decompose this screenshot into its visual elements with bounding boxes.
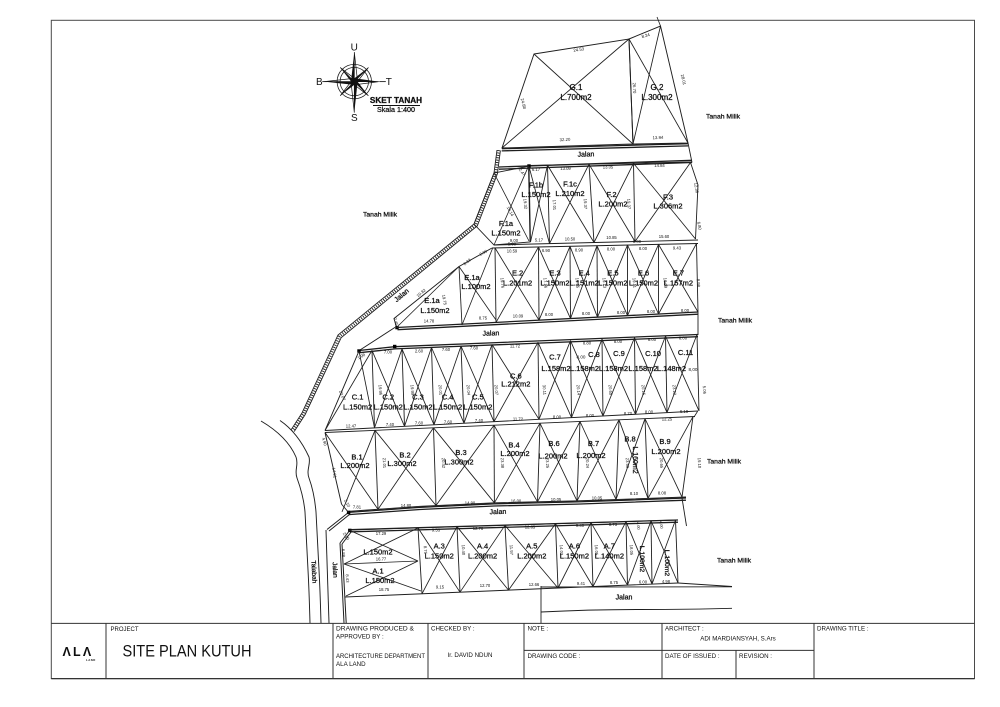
svg-text:12.70: 12.70 bbox=[480, 583, 491, 588]
svg-text:20.04: 20.04 bbox=[466, 384, 472, 395]
svg-text:19.99: 19.99 bbox=[410, 384, 416, 395]
svg-text:30.11: 30.11 bbox=[542, 385, 548, 396]
svg-text:10.05: 10.05 bbox=[592, 496, 603, 501]
svg-text:L.158m2: L.158m2 bbox=[628, 364, 657, 373]
svg-text:8.00: 8.00 bbox=[645, 410, 654, 415]
svg-text:8.00: 8.00 bbox=[617, 310, 626, 315]
svg-text:23.25: 23.25 bbox=[545, 458, 551, 469]
svg-text:19.37: 19.37 bbox=[626, 199, 632, 210]
svg-text:17.01: 17.01 bbox=[552, 200, 558, 211]
svg-text:F.1c: F.1c bbox=[563, 180, 577, 189]
svg-text:A.3: A.3 bbox=[434, 542, 445, 551]
svg-text:F.1b: F.1b bbox=[529, 181, 543, 190]
svg-text:L.200m2: L.200m2 bbox=[651, 447, 680, 456]
svg-text:C.5: C.5 bbox=[472, 393, 484, 402]
svg-text:Jalan: Jalan bbox=[489, 509, 506, 517]
svg-text:32.20: 32.20 bbox=[559, 137, 571, 142]
svg-text:A.4: A.4 bbox=[477, 542, 488, 551]
svg-text:C.9: C.9 bbox=[613, 349, 625, 358]
svg-text:9.43: 9.43 bbox=[673, 245, 682, 250]
svg-text:APPROVED BY :: APPROVED BY : bbox=[336, 634, 384, 641]
svg-text:20.65: 20.65 bbox=[608, 384, 614, 395]
svg-text:7.40: 7.40 bbox=[475, 418, 484, 423]
svg-text:DRAWING CODE :: DRAWING CODE : bbox=[528, 653, 581, 660]
svg-text:20.42: 20.42 bbox=[441, 458, 447, 469]
svg-text:4.98: 4.98 bbox=[662, 579, 671, 584]
svg-text:A.6: A.6 bbox=[569, 542, 580, 551]
svg-text:ARCHITECT :: ARCHITECT : bbox=[665, 626, 704, 633]
svg-text:Tanah Milik: Tanah Milik bbox=[718, 318, 753, 325]
svg-text:5.00: 5.00 bbox=[508, 242, 517, 247]
svg-text:20.65: 20.65 bbox=[659, 458, 665, 469]
svg-text:U: U bbox=[351, 43, 358, 54]
svg-text:Tanah Milik: Tanah Milik bbox=[717, 558, 752, 565]
svg-text:6.90: 6.90 bbox=[542, 248, 551, 253]
svg-text:ADI MARDIANSYAH, S.Ars: ADI MARDIANSYAH, S.Ars bbox=[700, 636, 776, 643]
svg-text:10.09: 10.09 bbox=[513, 314, 524, 319]
svg-text:8.00: 8.00 bbox=[577, 355, 586, 360]
svg-text:10.05: 10.05 bbox=[551, 497, 562, 502]
svg-text:SKET TANAH: SKET TANAH bbox=[370, 96, 422, 105]
svg-text:7.60: 7.60 bbox=[442, 347, 451, 352]
svg-text:B: B bbox=[316, 77, 323, 88]
svg-text:7.60: 7.60 bbox=[415, 421, 424, 426]
svg-text:14.84: 14.84 bbox=[654, 163, 665, 168]
svg-text:L.100m2: L.100m2 bbox=[663, 550, 670, 577]
svg-text:F.3: F.3 bbox=[663, 193, 673, 202]
svg-text:8,00: 8,00 bbox=[689, 367, 698, 372]
svg-text:9.41: 9.41 bbox=[577, 581, 586, 586]
svg-text:8.90: 8.90 bbox=[575, 247, 584, 252]
svg-text:9.53: 9.53 bbox=[432, 528, 441, 533]
svg-text:Jalan: Jalan bbox=[482, 330, 499, 338]
svg-text:Tanah Milik: Tanah Milik bbox=[707, 459, 742, 466]
svg-text:L.151m2: L.151m2 bbox=[570, 279, 599, 288]
svg-text:6.00: 6.00 bbox=[639, 580, 648, 585]
svg-text:13.05: 13.05 bbox=[603, 165, 614, 170]
svg-text:L.148m2: L.148m2 bbox=[657, 364, 686, 373]
svg-text:18.75: 18.75 bbox=[379, 587, 390, 592]
svg-text:F.1a: F.1a bbox=[499, 219, 514, 228]
svg-text:8.43: 8.43 bbox=[345, 574, 350, 583]
svg-text:8.75: 8.75 bbox=[479, 316, 488, 321]
svg-text:L.150m2: L.150m2 bbox=[363, 548, 392, 557]
svg-text:SITE PLAN KUTUH: SITE PLAN KUTUH bbox=[123, 642, 252, 661]
svg-text:19.32: 19.32 bbox=[523, 198, 529, 210]
svg-text:16.05: 16.05 bbox=[594, 545, 600, 556]
svg-text:A.1: A.1 bbox=[372, 567, 383, 576]
svg-text:6.17: 6.17 bbox=[532, 167, 541, 172]
svg-text:11.72: 11.72 bbox=[510, 344, 521, 349]
svg-text:L.300m2: L.300m2 bbox=[387, 459, 416, 468]
svg-text:9.40: 9.40 bbox=[576, 523, 585, 528]
svg-text:Jalan: Jalan bbox=[616, 595, 633, 602]
svg-text:19.10: 19.10 bbox=[697, 458, 703, 469]
svg-text:B.6: B.6 bbox=[548, 439, 559, 448]
svg-text:18.05: 18.05 bbox=[629, 545, 635, 556]
svg-text:L.150m2: L.150m2 bbox=[420, 306, 449, 315]
svg-text:Tanah Milik: Tanah Milik bbox=[706, 114, 741, 121]
svg-text:14.80: 14.80 bbox=[401, 503, 412, 508]
svg-text:8.00: 8.00 bbox=[553, 414, 562, 419]
svg-text:8.70: 8.70 bbox=[624, 411, 633, 416]
svg-text:9.15: 9.15 bbox=[436, 585, 445, 590]
svg-text:7.81: 7.81 bbox=[353, 504, 362, 509]
svg-text:5.06: 5.06 bbox=[702, 386, 708, 395]
svg-text:L.200m2: L.200m2 bbox=[538, 452, 567, 461]
svg-text:17.29: 17.29 bbox=[376, 531, 387, 536]
svg-text:ALA LAND: ALA LAND bbox=[336, 661, 366, 668]
svg-text:17.26: 17.26 bbox=[543, 277, 549, 288]
svg-text:7.00: 7.00 bbox=[384, 350, 393, 355]
svg-text:10.40: 10.40 bbox=[461, 545, 467, 556]
svg-text:Talabah: Talabah bbox=[309, 560, 317, 583]
svg-text:L.200m2: L.200m2 bbox=[598, 200, 627, 209]
svg-text:A.7: A.7 bbox=[604, 542, 615, 551]
svg-text:Tanah Milik: Tanah Milik bbox=[363, 212, 398, 219]
svg-text:11.72: 11.72 bbox=[513, 416, 524, 421]
svg-text:L.150m2: L.150m2 bbox=[433, 403, 462, 412]
svg-text:13.09: 13.09 bbox=[560, 166, 571, 171]
svg-text:20.14: 20.14 bbox=[576, 384, 582, 395]
svg-text:23.99: 23.99 bbox=[625, 458, 631, 469]
svg-text:B.8: B.8 bbox=[624, 435, 635, 444]
svg-text:8.75: 8.75 bbox=[610, 580, 619, 585]
svg-text:19.09: 19.09 bbox=[663, 277, 669, 288]
svg-text:6.18: 6.18 bbox=[680, 409, 689, 414]
svg-text:2.60: 2.60 bbox=[415, 348, 424, 353]
svg-text:E.1a: E.1a bbox=[464, 273, 480, 282]
svg-text:L.150m2: L.150m2 bbox=[365, 576, 394, 585]
svg-text:L.150m2: L.150m2 bbox=[343, 403, 372, 412]
svg-text:14.03: 14.03 bbox=[559, 545, 565, 556]
svg-text:L.150m2: L.150m2 bbox=[374, 403, 403, 412]
svg-text:19.96: 19.96 bbox=[378, 384, 384, 395]
svg-text:8.08: 8.08 bbox=[658, 491, 667, 496]
svg-text:7.60: 7.60 bbox=[444, 420, 453, 425]
svg-text:12.85: 12.85 bbox=[525, 525, 536, 530]
svg-text:S: S bbox=[351, 113, 358, 124]
svg-text:A.5: A.5 bbox=[526, 542, 537, 551]
svg-text:G.1: G.1 bbox=[570, 83, 583, 92]
svg-text:8.00: 8.00 bbox=[647, 309, 656, 314]
svg-text:19.76: 19.76 bbox=[500, 277, 506, 288]
svg-text:8.00: 8.00 bbox=[545, 312, 554, 317]
svg-text:L.150m2: L.150m2 bbox=[463, 403, 492, 412]
svg-text:E.3: E.3 bbox=[549, 269, 560, 278]
svg-text:16.77: 16.77 bbox=[376, 557, 387, 562]
svg-text:B.7: B.7 bbox=[588, 439, 599, 448]
svg-text:L.160m2: L.160m2 bbox=[631, 446, 638, 473]
svg-text:L.158m2: L.158m2 bbox=[599, 364, 628, 373]
svg-text:C.1: C.1 bbox=[352, 393, 364, 402]
svg-text:7.40: 7.40 bbox=[386, 422, 395, 427]
svg-text:T: T bbox=[386, 77, 392, 88]
svg-text:G.2: G.2 bbox=[651, 83, 664, 92]
svg-text:19.15: 19.15 bbox=[575, 277, 581, 288]
svg-text:L.200m2: L.200m2 bbox=[517, 552, 546, 561]
svg-text:L.201m2: L.201m2 bbox=[503, 279, 532, 288]
svg-text:L.100m2: L.100m2 bbox=[638, 546, 645, 573]
svg-text:E.4: E.4 bbox=[579, 269, 590, 278]
svg-text:7.60: 7.60 bbox=[470, 346, 479, 351]
svg-text:C.7: C.7 bbox=[549, 353, 561, 362]
svg-text:E.6: E.6 bbox=[638, 269, 649, 278]
svg-text:8.00: 8.00 bbox=[633, 239, 642, 244]
svg-text:12.66: 12.66 bbox=[529, 582, 540, 587]
svg-text:PROJECT: PROJECT bbox=[111, 627, 139, 633]
svg-text:8.00: 8.00 bbox=[614, 339, 623, 344]
svg-text:14.78: 14.78 bbox=[424, 319, 435, 324]
svg-text:Jalan: Jalan bbox=[578, 151, 595, 158]
svg-text:Jalan: Jalan bbox=[331, 562, 339, 578]
svg-text:Ir. DAVID NDUN: Ir. DAVID NDUN bbox=[448, 652, 493, 659]
svg-text:L.306m2: L.306m2 bbox=[653, 202, 682, 211]
svg-text:5.17: 5.17 bbox=[535, 238, 544, 243]
svg-text:CHECKED BY :: CHECKED BY : bbox=[431, 626, 475, 633]
svg-text:L.300m2: L.300m2 bbox=[444, 458, 473, 467]
svg-text:23.22: 23.22 bbox=[672, 384, 678, 395]
svg-text:8.10: 8.10 bbox=[630, 491, 639, 496]
svg-text:B.9: B.9 bbox=[659, 437, 670, 446]
svg-text:8.73: 8.73 bbox=[609, 522, 618, 527]
svg-text:20.24: 20.24 bbox=[585, 458, 591, 469]
svg-text:20.15: 20.15 bbox=[641, 384, 647, 395]
svg-text:10.50: 10.50 bbox=[565, 237, 576, 242]
svg-text:19.11: 19.11 bbox=[632, 278, 638, 289]
svg-text:NOTE :: NOTE : bbox=[528, 626, 549, 633]
svg-text:10.85: 10.85 bbox=[606, 235, 617, 240]
svg-text:L.210m2: L.210m2 bbox=[555, 189, 584, 198]
svg-text:C.11: C.11 bbox=[678, 348, 693, 357]
svg-text:20.01: 20.01 bbox=[438, 384, 444, 395]
svg-text:L.200m2: L.200m2 bbox=[340, 461, 369, 470]
svg-text:15.60: 15.60 bbox=[659, 234, 670, 239]
svg-text:REVISION :: REVISION : bbox=[739, 653, 772, 660]
svg-text:8.00: 8.00 bbox=[648, 337, 657, 342]
svg-text:C.8: C.8 bbox=[588, 350, 600, 359]
svg-text:10.59: 10.59 bbox=[507, 249, 518, 254]
svg-text:L.700m2: L.700m2 bbox=[560, 93, 592, 102]
svg-text:E.1a: E.1a bbox=[424, 296, 440, 305]
svg-text:23.38: 23.38 bbox=[500, 458, 506, 469]
svg-text:8.00: 8.00 bbox=[586, 413, 595, 418]
svg-text:8.80: 8.80 bbox=[583, 340, 592, 345]
svg-text:L.158m2: L.158m2 bbox=[570, 364, 599, 373]
svg-text:26.70: 26.70 bbox=[632, 82, 637, 94]
svg-text:DRAWING TITLE :: DRAWING TITLE : bbox=[817, 626, 869, 633]
svg-text:ARCHITECTURE DEPARTMENT: ARCHITECTURE DEPARTMENT bbox=[336, 653, 425, 660]
svg-text:F.2: F.2 bbox=[606, 190, 616, 199]
svg-text:12.78: 12.78 bbox=[473, 526, 484, 531]
svg-text:DRAWING PRODUCED &: DRAWING PRODUCED & bbox=[336, 626, 415, 633]
svg-text:E.5: E.5 bbox=[607, 269, 618, 278]
svg-text:19.37: 19.37 bbox=[583, 199, 589, 210]
svg-text:8.98: 8.98 bbox=[696, 279, 702, 288]
svg-text:8.00: 8.00 bbox=[679, 336, 688, 341]
svg-text:6.88: 6.88 bbox=[341, 549, 346, 558]
svg-text:8.00: 8.00 bbox=[639, 246, 648, 251]
svg-text:L.150m2: L.150m2 bbox=[491, 229, 520, 238]
svg-text:L.158m2: L.158m2 bbox=[541, 364, 570, 373]
svg-text:Skala 1:400: Skala 1:400 bbox=[377, 105, 415, 114]
svg-text:20.07: 20.07 bbox=[494, 384, 500, 395]
svg-text:11.97: 11.97 bbox=[509, 545, 515, 556]
svg-text:L.100m2: L.100m2 bbox=[461, 282, 490, 291]
svg-text:L.150m2: L.150m2 bbox=[403, 403, 432, 412]
svg-text:E.7: E.7 bbox=[673, 269, 684, 278]
svg-text:L.200m2: L.200m2 bbox=[576, 451, 605, 460]
svg-text:21.01: 21.01 bbox=[382, 458, 388, 469]
svg-text:8.00: 8.00 bbox=[607, 247, 616, 252]
svg-text:8.00: 8.00 bbox=[582, 311, 591, 316]
svg-text:8.75: 8.75 bbox=[423, 546, 428, 555]
svg-text:12.47: 12.47 bbox=[346, 424, 357, 429]
svg-text:L.212m2: L.212m2 bbox=[501, 380, 530, 389]
svg-text:L.300m2: L.300m2 bbox=[641, 93, 673, 102]
svg-text:LAND: LAND bbox=[86, 658, 96, 662]
svg-text:E.2: E.2 bbox=[512, 269, 523, 278]
svg-text:19.13: 19.13 bbox=[602, 277, 608, 288]
svg-text:C.10: C.10 bbox=[645, 349, 661, 358]
svg-text:L.200m2: L.200m2 bbox=[468, 552, 497, 561]
svg-text:B.3: B.3 bbox=[455, 448, 466, 457]
svg-text:DATE OF ISSUED :: DATE OF ISSUED : bbox=[665, 653, 720, 660]
svg-text:13.94: 13.94 bbox=[652, 135, 664, 140]
